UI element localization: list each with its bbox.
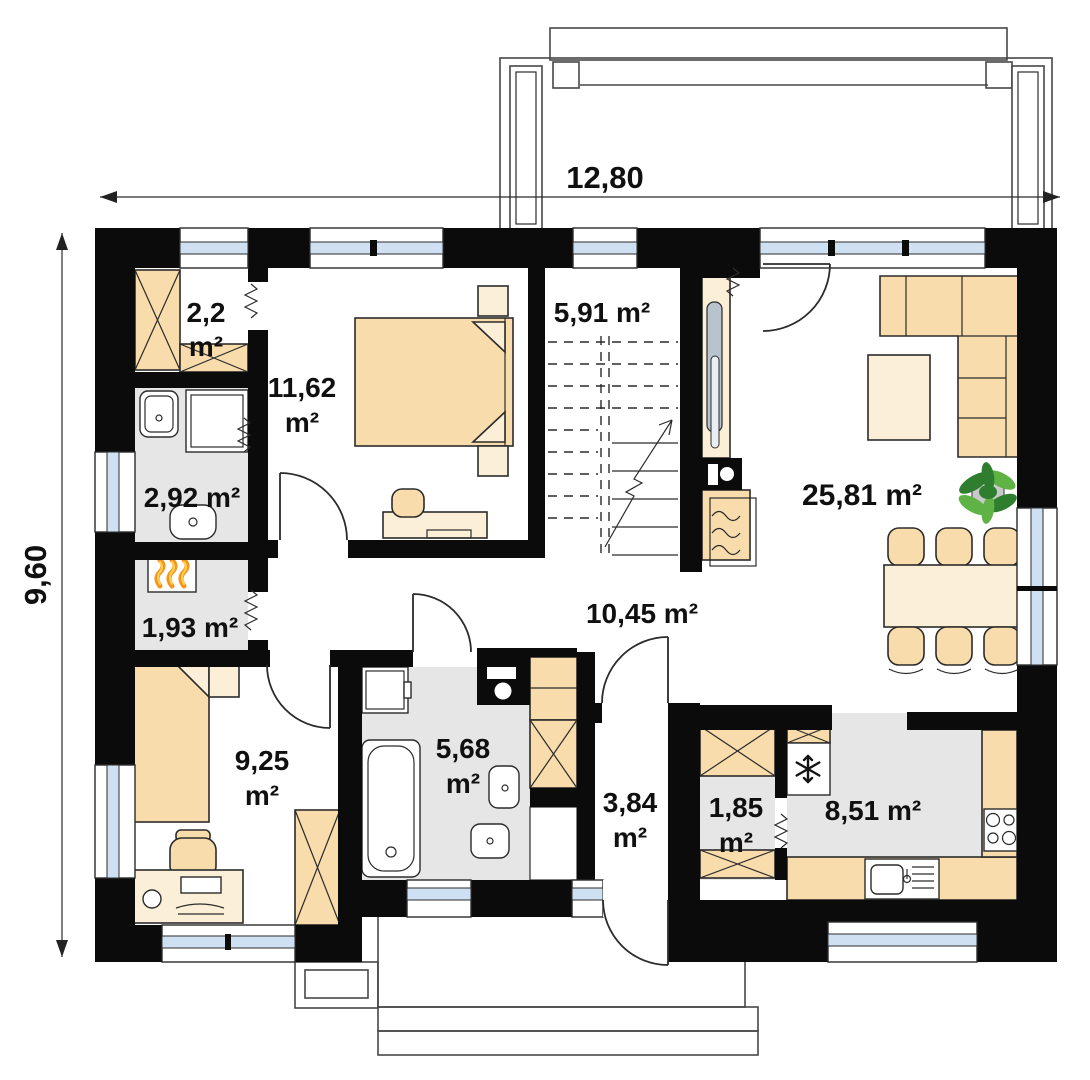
dining-set [884, 528, 1020, 674]
door-bathroom-main [413, 594, 471, 652]
nightstand-top [478, 286, 508, 316]
wall-entry-right [668, 703, 700, 962]
nightstand-bottom [478, 446, 508, 476]
floor-plan-drawing: 12,80 9,60 [0, 0, 1090, 1080]
chimney-flue [708, 464, 718, 485]
room-label-bedroom-lower: 9,25m² [235, 745, 290, 811]
tv-soundbar [711, 356, 719, 448]
bedroom-upper-furniture [355, 286, 513, 538]
window-living-right [1017, 508, 1057, 665]
wall-pantry-right-a [775, 718, 787, 798]
dim-arrow-left [100, 191, 117, 203]
window-kitchen-south [828, 922, 977, 962]
room-label-entry: 3,84m² [603, 787, 658, 853]
window-bedroom-lower [95, 765, 135, 878]
nightstand [209, 665, 239, 697]
desk-lamp [143, 890, 161, 908]
wall-bath-boiler [95, 542, 268, 560]
washer-panel [404, 682, 411, 698]
stair-walk-line [605, 420, 672, 547]
door-bedroom-lower [267, 665, 330, 728]
opening-closet [245, 284, 257, 318]
living-room-furniture [868, 276, 1020, 674]
door-bedroom-upper [280, 473, 347, 540]
furnace [148, 558, 196, 592]
wall-closet-bath [95, 372, 268, 388]
room-label-staircase: 5,91 m² [554, 297, 651, 328]
wall-pantry-right-b [775, 848, 787, 880]
coffee-table [868, 355, 930, 440]
window-bedroom-upper [310, 228, 443, 268]
window-bathroom-small [95, 452, 135, 532]
wall-boiler-bedroom [95, 650, 270, 667]
hall-wardrobe [530, 657, 577, 880]
dim-arrow-bottom [56, 940, 68, 957]
wall-entry-left [577, 652, 595, 880]
dim-arrow-top [56, 233, 68, 250]
wall-kitchen-top [907, 712, 1017, 730]
wall-stub [248, 268, 268, 282]
tv-unit [702, 272, 730, 458]
porch-step-2 [378, 1031, 758, 1055]
room-label-living-room: 25,81 m² [802, 479, 922, 512]
chimney-round-flue [720, 467, 734, 481]
toilet-bowl [495, 683, 512, 700]
wall-stairs-right [680, 268, 702, 572]
dimension-height: 9,60 [18, 233, 68, 957]
fireplace [702, 490, 756, 566]
staircase-drawing [548, 336, 678, 556]
desk-chair-upper [392, 489, 424, 517]
door-terrace [763, 264, 830, 331]
wall-pantry-top [700, 705, 832, 730]
entry-door-gap [603, 880, 668, 917]
sink-right [489, 766, 519, 808]
room-label-boiler-room: 1,93 m² [142, 612, 239, 643]
terrace-slab [500, 58, 1052, 230]
window-bathroom-main-south [407, 880, 471, 917]
dining-chair [936, 528, 972, 566]
door-entry-inner [602, 637, 668, 703]
window-entry-south [572, 880, 603, 917]
sink-lower [471, 824, 509, 858]
terrace-post-right [986, 62, 1012, 88]
dimension-height-label: 9,60 [18, 545, 53, 605]
room-label-kitchen: 8,51 m² [825, 795, 922, 826]
porch-step-1 [378, 1007, 758, 1031]
dimension-width: 12,80 [100, 160, 1060, 203]
wall-stairs-left [528, 268, 545, 558]
window-closet [180, 228, 248, 268]
terrace-post-left [553, 62, 579, 88]
niche [530, 807, 577, 880]
room-label-bathroom-small: 2,92 m² [144, 482, 241, 513]
desk-item [181, 877, 221, 893]
washing-machine [362, 667, 408, 713]
dining-table [884, 565, 1020, 627]
porch-small [295, 962, 378, 1008]
toilet-cistern [487, 667, 516, 679]
kitchen-sink [865, 859, 939, 899]
terrace-roof-edge [550, 28, 1007, 60]
room-label-hall: 10,45 m² [586, 598, 698, 629]
sink [140, 391, 178, 437]
terrace-pillar-left [510, 66, 542, 230]
porch-small-mat [305, 970, 368, 998]
dining-chair [888, 528, 924, 566]
dining-chair [936, 627, 972, 665]
wall-entry-top-stub [595, 703, 602, 723]
wall-bedroom-bathroom [338, 650, 362, 925]
stair-stringer [601, 336, 609, 556]
window-living-top [760, 228, 985, 268]
upper-terrace [500, 28, 1052, 230]
dining-chair [984, 528, 1020, 566]
shower [186, 390, 248, 452]
room-label-wardrobe-closet: 2,2m² [187, 297, 226, 362]
single-bed [133, 665, 209, 822]
stove [984, 809, 1017, 851]
wall-bedroom-upper-a [248, 540, 278, 558]
window-stairs [573, 228, 637, 268]
dimension-width-label: 12,80 [566, 160, 644, 195]
opening-pantry [775, 814, 787, 848]
bedroom-lower-furniture [133, 665, 340, 925]
wall-bedroom-upper-b [348, 540, 530, 558]
wall-stub [530, 648, 577, 657]
room-label-bedroom-upper: 11,62m² [268, 372, 337, 438]
dining-chair [888, 627, 924, 665]
dining-chair [984, 627, 1020, 665]
terrace-pillar-right [1012, 66, 1044, 230]
floor-plan-page: 12,80 9,60 [0, 0, 1090, 1080]
plant [956, 461, 1020, 525]
wall-stub [530, 788, 577, 807]
window-bedroom-lower-south [162, 925, 295, 962]
